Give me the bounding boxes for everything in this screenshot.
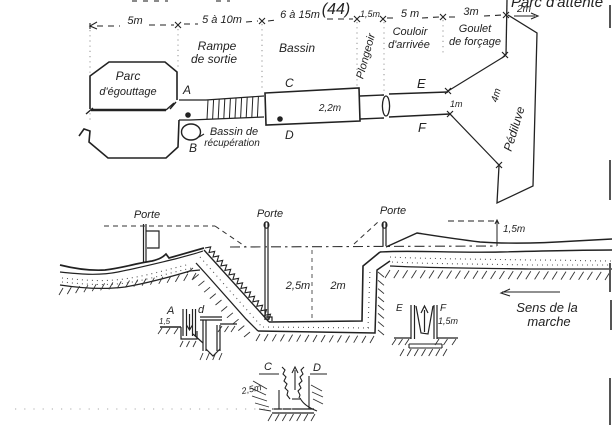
svg-text:D: D	[313, 362, 321, 374]
svg-text:2m: 2m	[329, 280, 345, 292]
svg-text:2,5m: 2,5m	[285, 280, 310, 292]
svg-text:de sortie: de sortie	[191, 52, 237, 66]
svg-text:1,5m: 1,5m	[503, 224, 525, 235]
svg-text:1,5: 1,5	[159, 317, 171, 326]
svg-text:Porte: Porte	[257, 208, 283, 220]
svg-text:1,5m: 1,5m	[360, 9, 381, 19]
svg-text:B: B	[189, 141, 197, 155]
svg-text:Rampe: Rampe	[198, 39, 237, 53]
svg-text:F: F	[440, 303, 447, 314]
svg-text:5 m: 5 m	[401, 8, 419, 20]
svg-text:de forçage: de forçage	[449, 36, 501, 48]
svg-text:5 à 10m: 5 à 10m	[202, 14, 242, 26]
svg-text:Bassin: Bassin	[279, 41, 315, 55]
svg-text:Porte: Porte	[380, 205, 406, 217]
svg-text:C: C	[264, 361, 272, 373]
svg-text:Parc: Parc	[116, 69, 141, 83]
svg-text:E: E	[396, 303, 403, 314]
svg-text:Sens de la: Sens de la	[516, 300, 577, 315]
svg-text:C: C	[285, 76, 294, 90]
svg-text:marche: marche	[527, 314, 570, 329]
svg-text:2,2m: 2,2m	[318, 103, 341, 114]
svg-text:A: A	[166, 305, 174, 317]
svg-text:A: A	[182, 83, 191, 97]
svg-text:5m: 5m	[127, 15, 142, 27]
svg-text:Couloir: Couloir	[393, 26, 429, 38]
svg-text:récupération: récupération	[204, 138, 260, 149]
svg-text:1m: 1m	[450, 99, 463, 109]
svg-text:Porte: Porte	[134, 209, 160, 221]
svg-text:E: E	[417, 76, 426, 91]
svg-text:F: F	[418, 120, 427, 135]
svg-text:d'arrivée: d'arrivée	[388, 39, 430, 51]
svg-text:d: d	[198, 304, 205, 316]
svg-text:Parc d'attente: Parc d'attente	[511, 0, 603, 11]
svg-text:D: D	[285, 128, 294, 142]
svg-text:1,5m: 1,5m	[438, 316, 459, 326]
svg-text:(44): (44)	[322, 1, 350, 18]
svg-text:6 à 15m: 6 à 15m	[280, 9, 320, 21]
svg-text:Bassin de: Bassin de	[210, 126, 258, 138]
svg-text:3m: 3m	[463, 6, 478, 18]
svg-text:d'égouttage: d'égouttage	[99, 86, 156, 98]
svg-text:Goulet: Goulet	[459, 23, 492, 35]
